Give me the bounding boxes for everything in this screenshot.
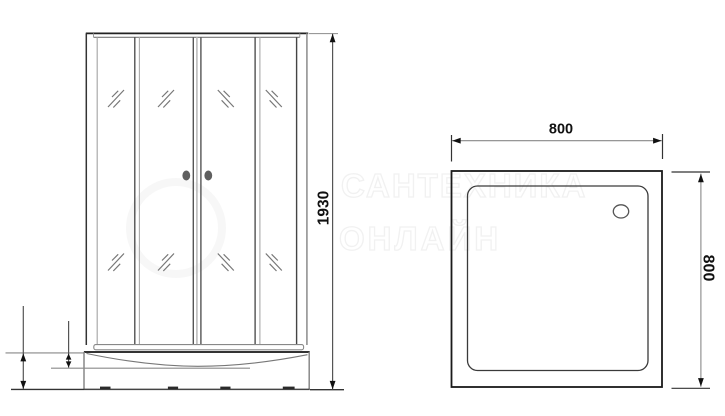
svg-text:800: 800 [549,121,573,137]
svg-text:800: 800 [699,255,716,282]
svg-text:1930: 1930 [315,191,332,225]
svg-text:ОНЛАЙН: ОНЛАЙН [339,219,501,257]
